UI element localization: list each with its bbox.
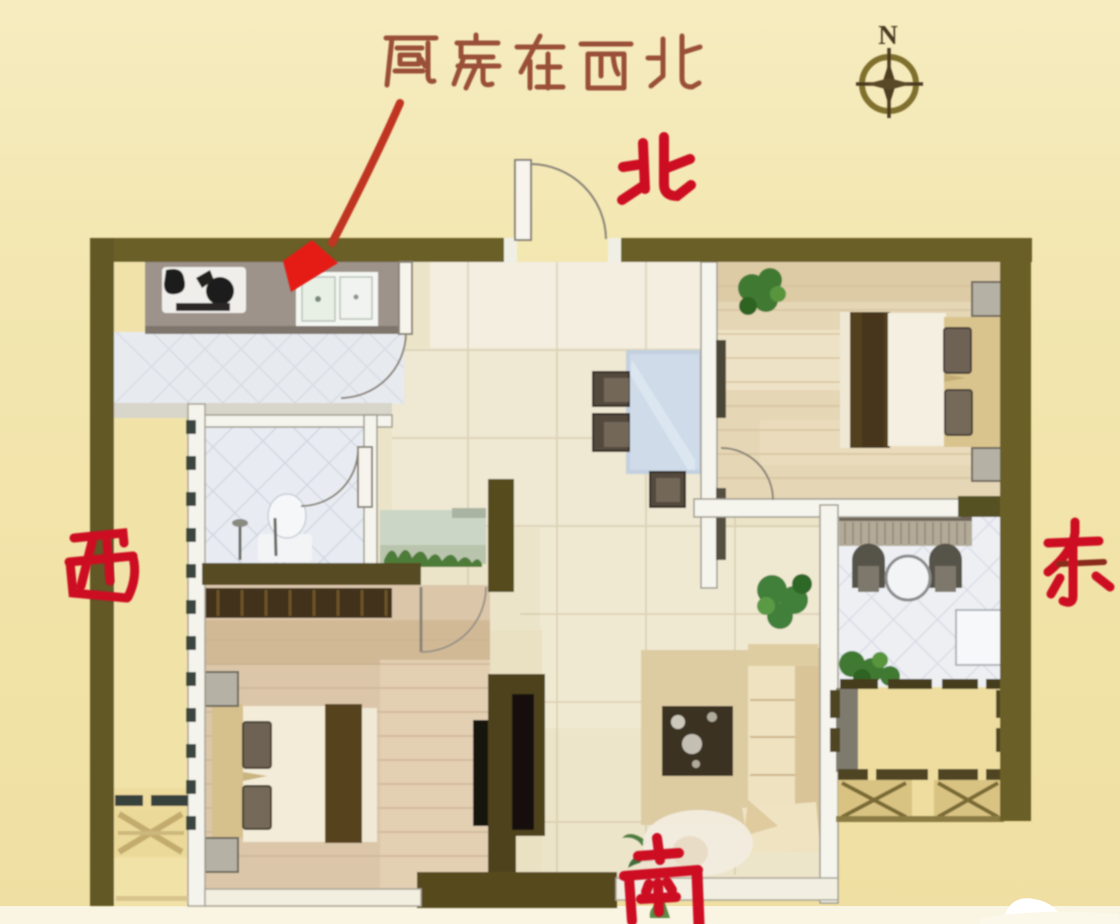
svg-text:N: N — [878, 20, 898, 50]
